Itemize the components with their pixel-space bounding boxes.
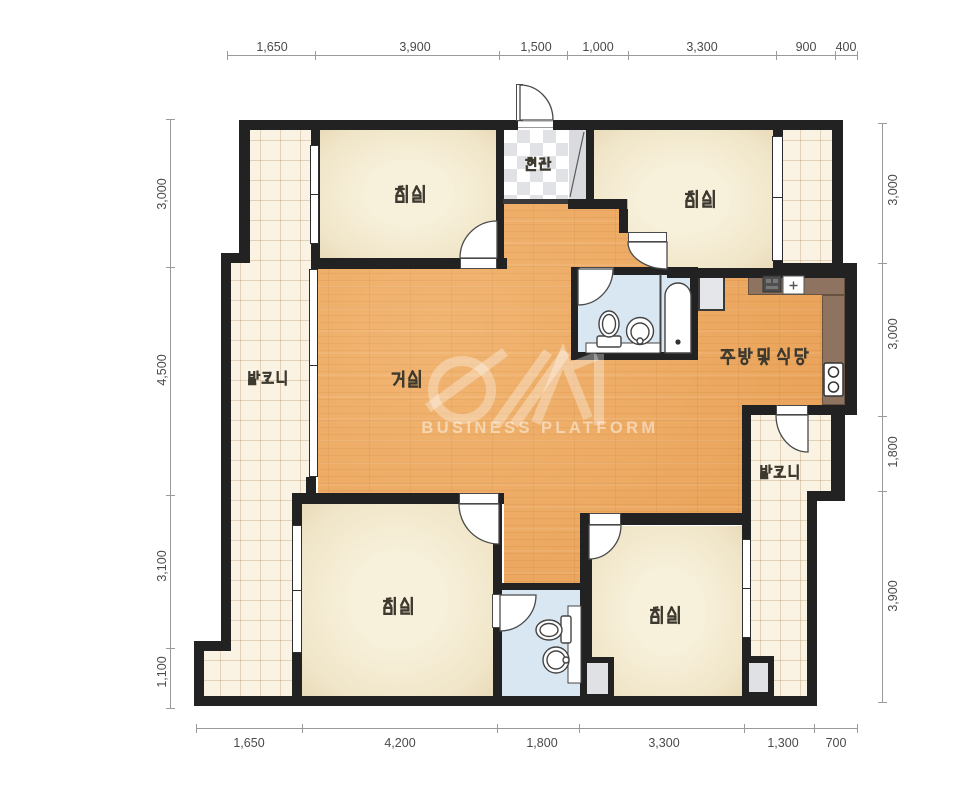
svg-text:BUSINESS PLATFORM: BUSINESS PLATFORM <box>421 419 658 437</box>
